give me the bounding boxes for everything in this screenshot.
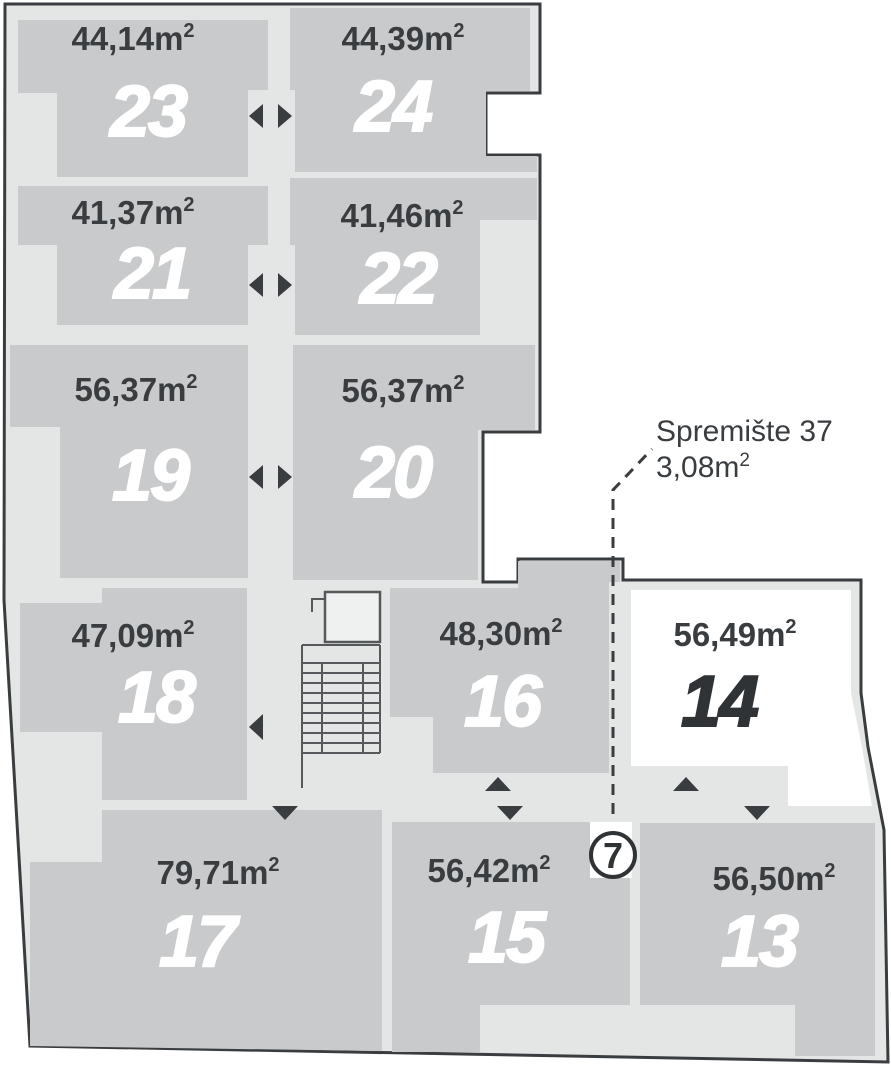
unit-22-area: 41,46m2	[340, 197, 463, 234]
unit-24[interactable]: 44,39m2 24	[290, 8, 537, 172]
unit-22-number: 22	[358, 239, 438, 319]
storage-name: Spremište 37	[656, 415, 833, 448]
unit-16-number: 16	[464, 662, 543, 742]
unit-24-area: 44,39m2	[341, 20, 464, 57]
unit-21-number: 21	[112, 234, 190, 314]
unit-23-number: 23	[108, 72, 188, 152]
storage-marker[interactable]: 7	[590, 822, 635, 878]
unit-19-area: 56,37m2	[74, 371, 197, 408]
storage-marker-label: 7	[603, 835, 623, 876]
unit-18-area: 47,09m2	[71, 617, 194, 654]
storage-area: 3,08m2	[656, 450, 750, 484]
unit-23-area: 44,14m2	[71, 20, 194, 57]
unit-14-number: 14	[681, 662, 758, 742]
unit-20-number: 20	[353, 433, 433, 513]
unit-20-area: 56,37m2	[341, 372, 464, 409]
unit-15-area: 56,42m2	[427, 852, 550, 889]
unit-15-number: 15	[468, 898, 547, 978]
unit-19-number: 19	[112, 436, 190, 516]
elevator-icon	[325, 592, 380, 642]
unit-16-area: 48,30m2	[439, 615, 562, 652]
unit-24-number: 24	[353, 67, 432, 147]
unit-13-number: 13	[721, 902, 799, 982]
unit-17-number: 17	[159, 902, 240, 982]
unit-13-area: 56,50m2	[712, 860, 835, 897]
floor-plan-svg: 44,14m2 23 44,39m2 24 41,37m2 21 41,46m2…	[0, 0, 891, 1068]
unit-17-area: 79,71m2	[156, 854, 279, 891]
unit-18-number: 18	[118, 658, 196, 738]
unit-21-area: 41,37m2	[71, 194, 194, 231]
unit-20[interactable]: 56,37m2 20	[293, 345, 535, 580]
floor-plan: 44,14m2 23 44,39m2 24 41,37m2 21 41,46m2…	[0, 0, 891, 1068]
unit-14-area: 56,49m2	[673, 616, 796, 653]
